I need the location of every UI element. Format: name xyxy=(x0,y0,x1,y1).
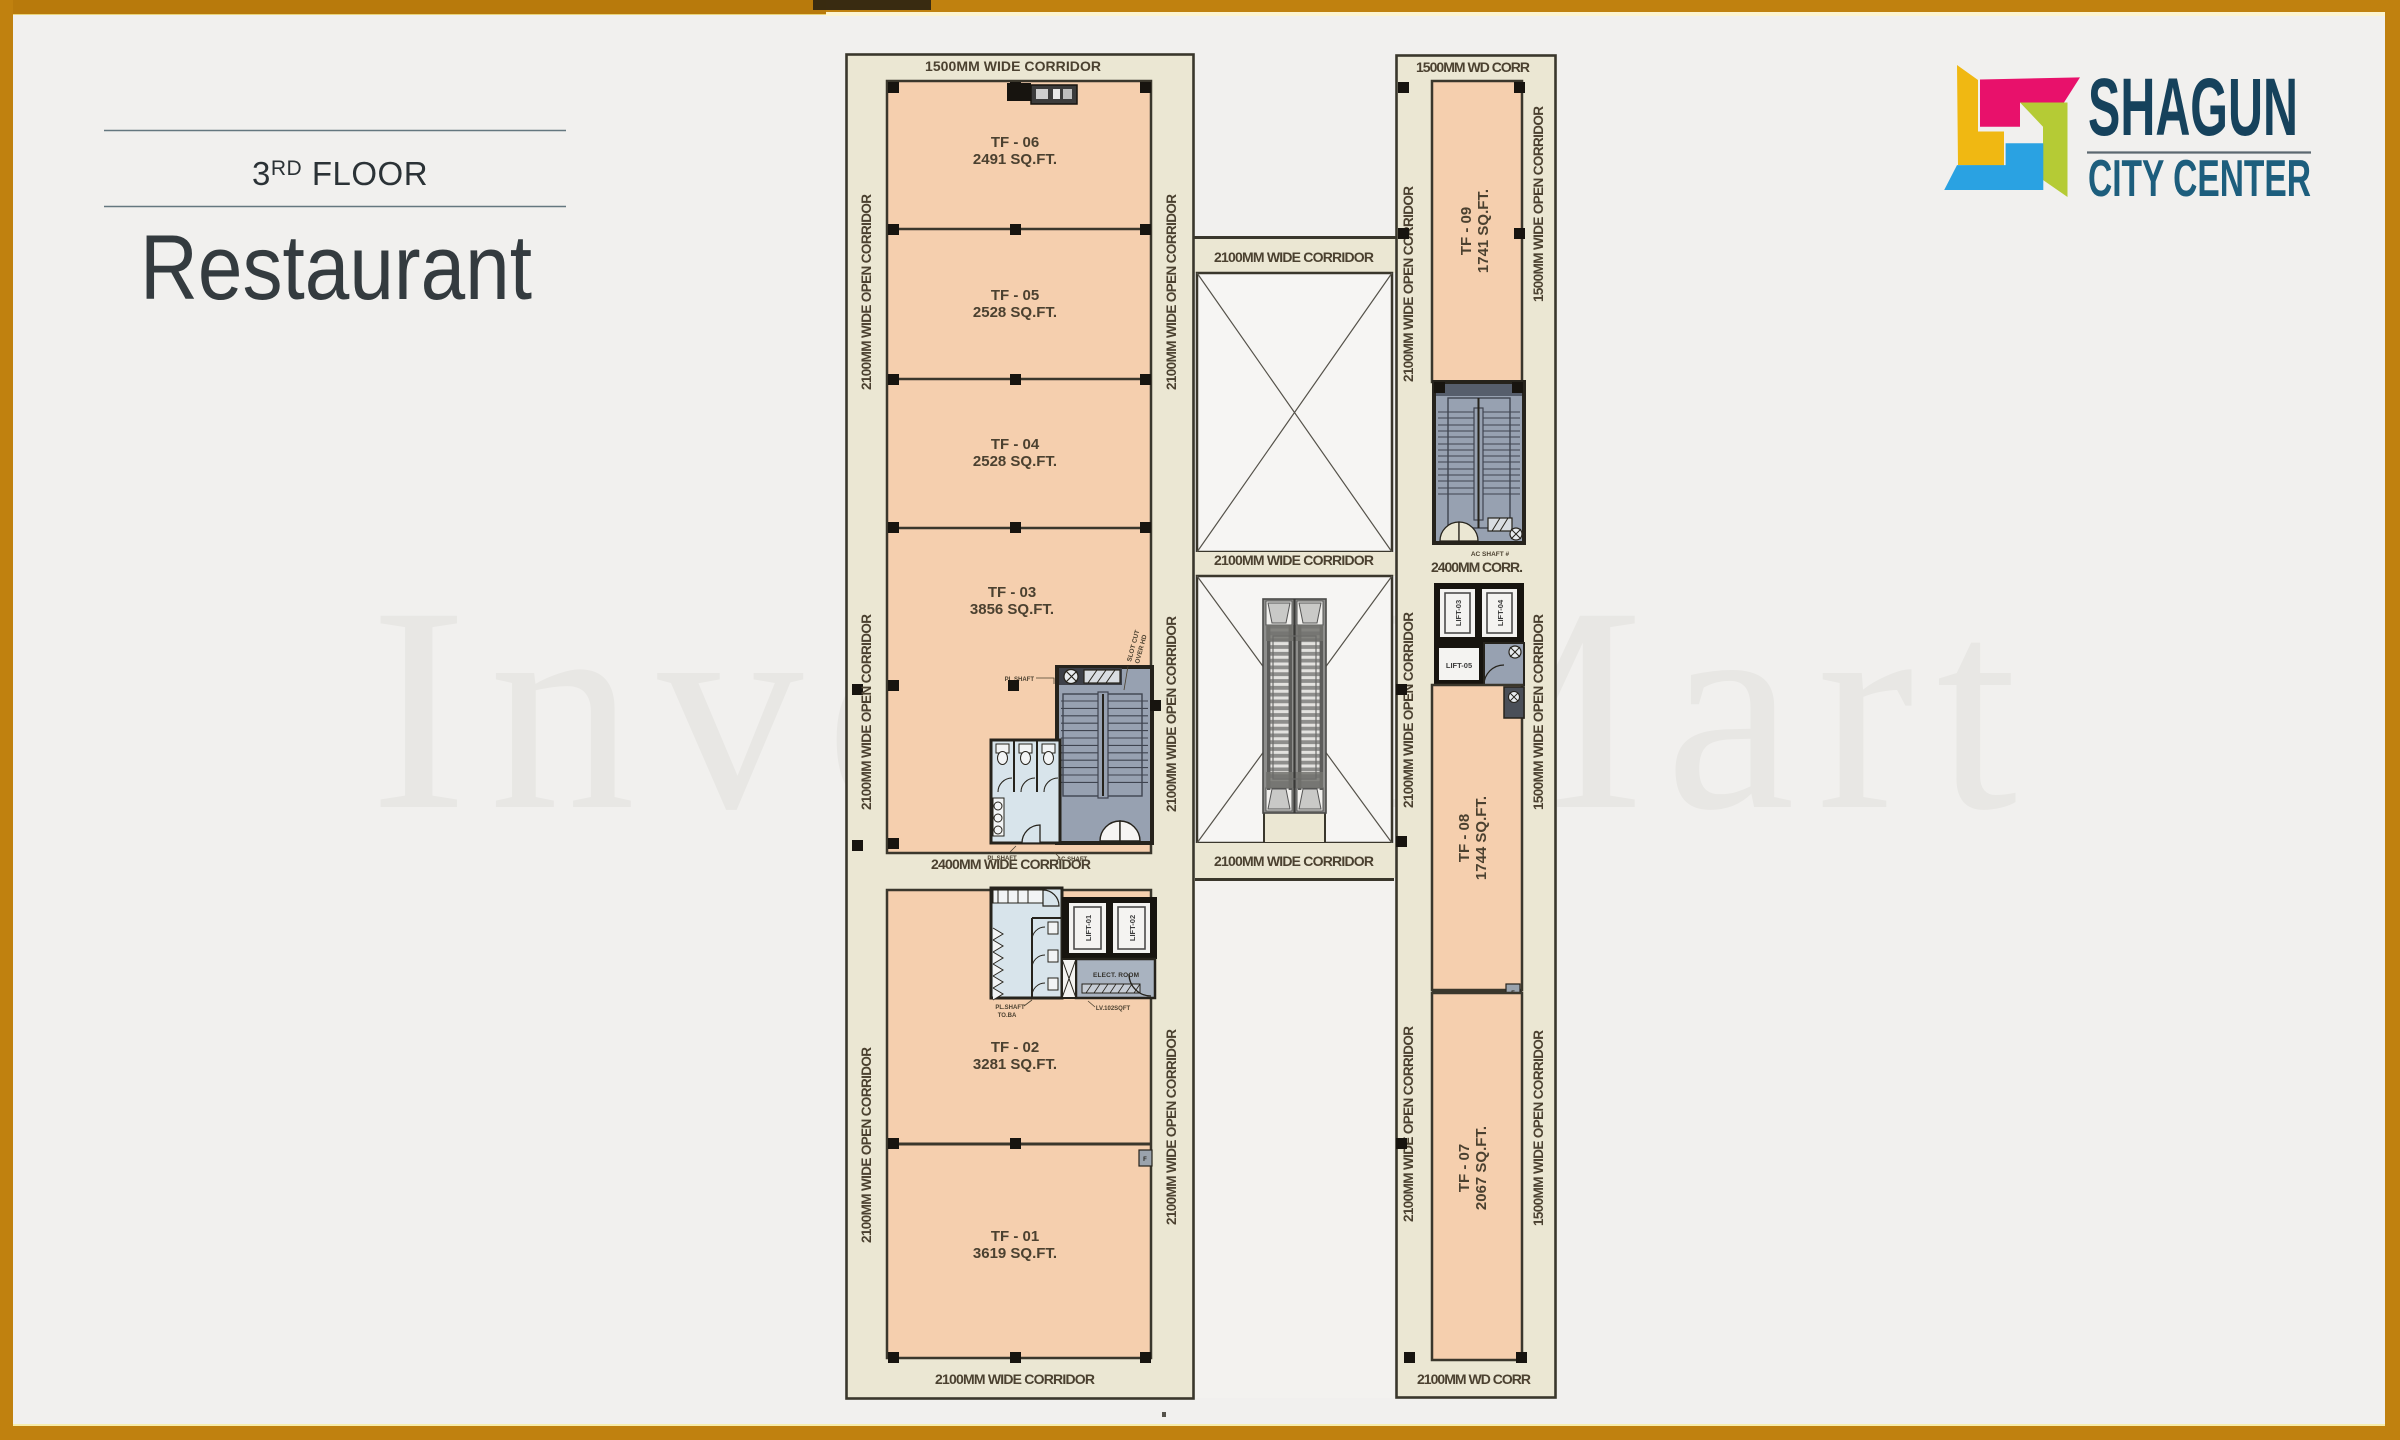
svg-text:3RD FLOOR: 3RD FLOOR xyxy=(252,155,428,192)
svg-text:Restaurant: Restaurant xyxy=(140,217,532,319)
